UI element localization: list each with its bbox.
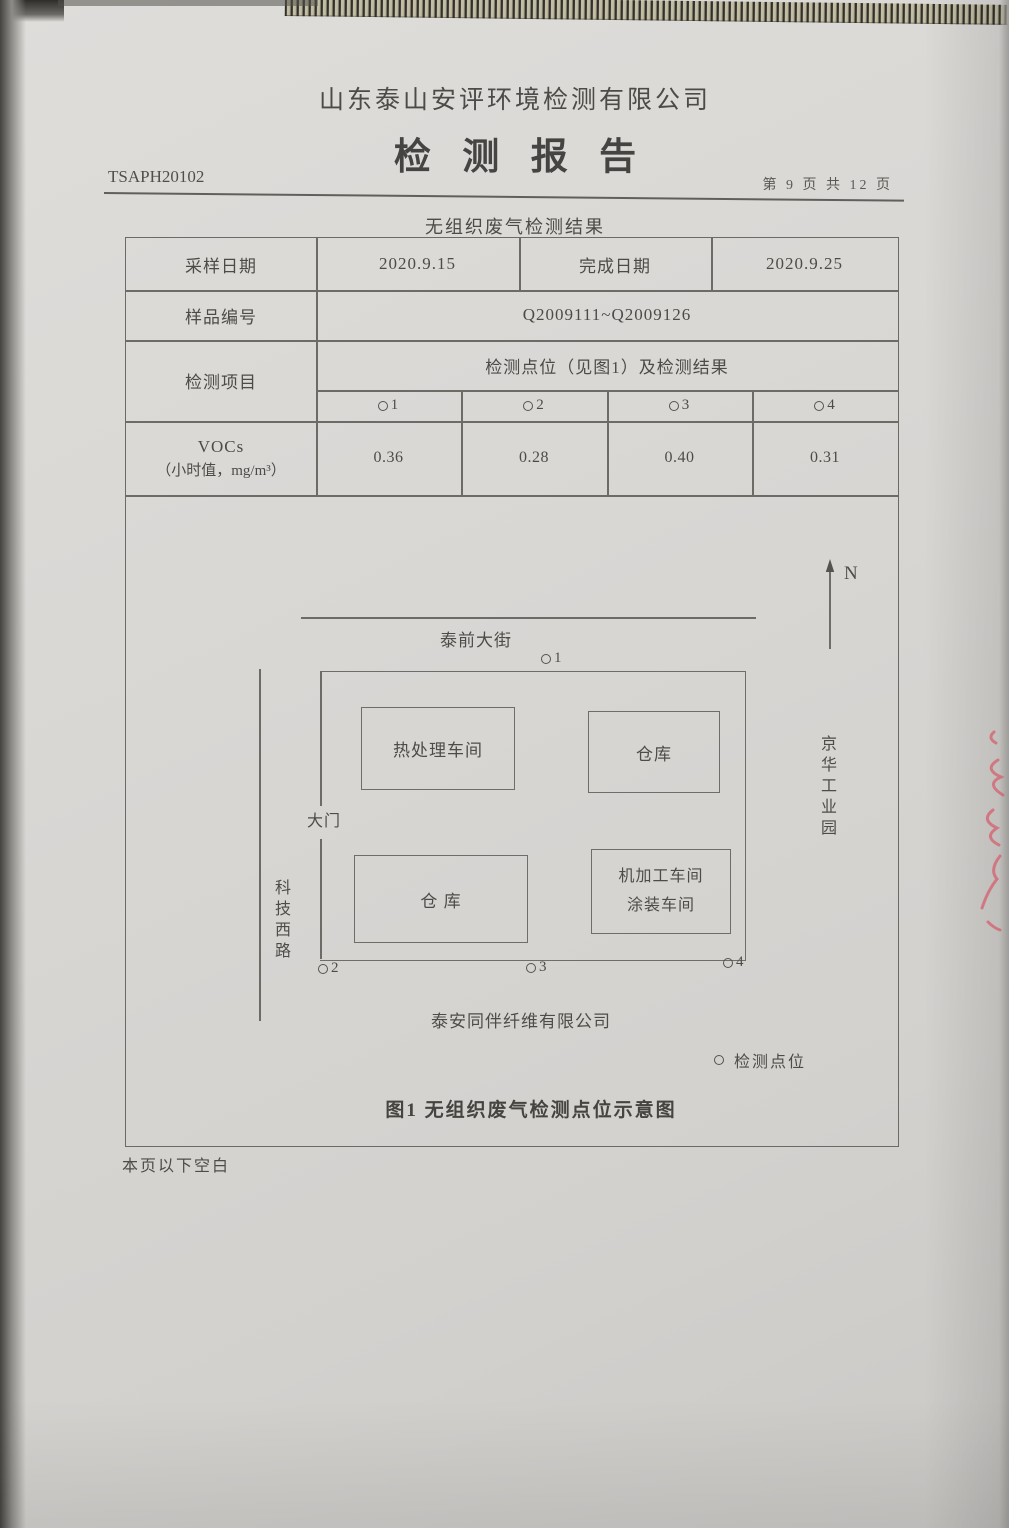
point-circle-icon — [723, 958, 733, 968]
north-label: N — [844, 563, 859, 585]
test-item-label: 检测项目 — [126, 340, 316, 421]
point-circle-icon — [814, 401, 824, 411]
paper-left-edge-shadow — [0, 0, 26, 1528]
company-name: 山东泰山安评环境检测有限公司 — [160, 80, 870, 116]
sampling-date-value: 2020.9.15 — [316, 238, 519, 290]
point-number: 2 — [536, 397, 545, 414]
point-number: 1 — [391, 397, 400, 414]
building-machining-painting: 机加工车间 涂装车间 — [591, 849, 731, 934]
building-machining-label: 机加工车间 — [618, 863, 703, 892]
legend-circle-icon — [714, 1055, 724, 1065]
paper-bottom-shade — [0, 1398, 1009, 1528]
building-warehouse-bottom: 仓 库 — [354, 855, 528, 943]
point-circle-icon — [669, 401, 679, 411]
monitoring-point-1: 1 — [541, 650, 562, 667]
sample-no-value: Q2009111~Q2009126 — [316, 290, 898, 340]
street-line — [301, 617, 756, 619]
report-number: TSAPH20102 — [108, 167, 204, 187]
legend-label: 检测点位 — [734, 1048, 806, 1072]
points-header: 检测点位（见图1）及检测结果 — [316, 340, 898, 390]
point-number: 3 — [539, 959, 547, 976]
monitoring-point-2: 2 — [318, 960, 339, 977]
street-top-label: 泰前大街 — [421, 626, 531, 651]
point-3-header: 3 — [607, 390, 752, 421]
site-diagram: N 泰前大街 1 科技西路 京华工业园 大门 热处理车间 仓库 仓 库 — [126, 495, 898, 1144]
building-painting-label: 涂装车间 — [627, 892, 695, 921]
building-heat-treatment: 热处理车间 — [361, 707, 515, 790]
factory-name: 泰安同伴纤维有限公司 — [406, 1007, 636, 1032]
paper-top-edge-shadow — [58, 0, 318, 6]
completion-date-label: 完成日期 — [519, 238, 711, 290]
voc-value-1: 0.36 — [316, 421, 461, 495]
diagram-legend: 检测点位 — [714, 1048, 806, 1072]
gate-label: 大门 — [294, 807, 354, 831]
point-number: 2 — [331, 960, 339, 977]
red-handwriting-marks — [963, 726, 1009, 944]
point-4-header: 4 — [752, 390, 898, 421]
point-number: 3 — [682, 397, 691, 414]
road-left-line — [259, 669, 261, 1021]
page-indicator: 第 9 页 共 12 页 — [738, 174, 893, 194]
point-circle-icon — [523, 401, 533, 411]
report-title: 检测报告 — [160, 126, 870, 180]
road-left-label: 科技西路 — [268, 873, 292, 969]
point-circle-icon — [318, 964, 328, 974]
sample-no-label: 样品编号 — [126, 290, 316, 340]
point-number: 4 — [736, 954, 744, 971]
voc-value-4: 0.31 — [752, 421, 898, 495]
scanned-report-page: 山东泰山安评环境检测有限公司 检测报告 TSAPH20102 第 9 页 共 1… — [0, 0, 1009, 1528]
building-warehouse-top: 仓库 — [588, 711, 720, 793]
factory-left-wall-lower — [320, 839, 322, 959]
footer-note: 本页以下空白 — [122, 1152, 230, 1176]
point-circle-icon — [526, 963, 536, 973]
voc-unit: （小时值，mg/m³） — [156, 460, 286, 483]
point-circle-icon — [378, 401, 388, 411]
monitoring-point-4: 4 — [723, 954, 744, 971]
monitoring-point-3: 3 — [526, 959, 547, 976]
section-title: 无组织废气检测结果 — [160, 213, 870, 239]
figure-caption: 图1 无组织废气检测点位示意图 — [366, 1095, 696, 1122]
results-table: 采样日期 2020.9.15 完成日期 2020.9.25 样品编号 Q2009… — [125, 237, 899, 1147]
park-right-label: 京华工业园 — [814, 733, 838, 841]
factory-left-wall-upper — [320, 671, 322, 806]
point-number: 1 — [554, 650, 562, 667]
book-page-stack-stripes — [285, 0, 1009, 25]
sampling-date-label: 采样日期 — [126, 238, 316, 290]
point-number: 4 — [827, 397, 836, 414]
north-arrow-icon — [821, 559, 839, 651]
voc-label-cell: VOCs （小时值，mg/m³） — [126, 421, 316, 495]
voc-name: VOCs — [198, 434, 245, 460]
point-2-header: 2 — [461, 390, 607, 421]
point-1-header: 1 — [316, 390, 461, 421]
voc-value-3: 0.40 — [607, 421, 752, 495]
voc-value-2: 0.28 — [461, 421, 607, 495]
point-circle-icon — [541, 654, 551, 664]
completion-date-value: 2020.9.25 — [711, 238, 898, 290]
